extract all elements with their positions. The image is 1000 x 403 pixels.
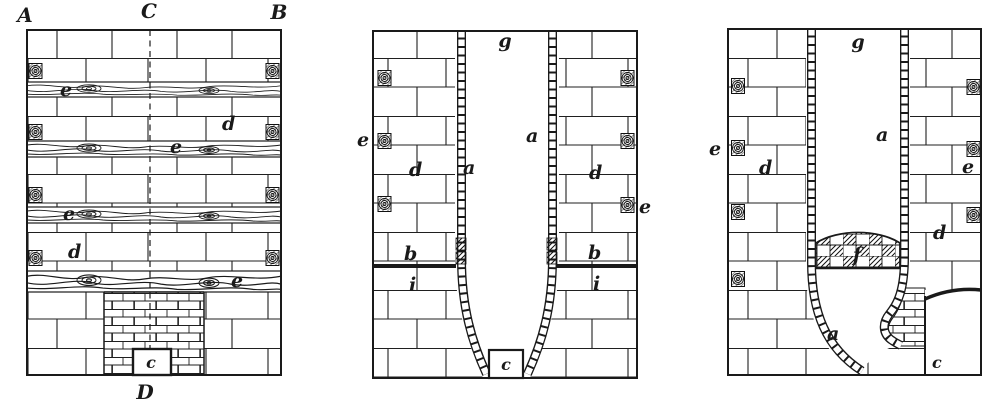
beam-end-block <box>732 272 745 287</box>
label-masonry-right: d <box>589 162 602 184</box>
beam-end-block <box>967 142 980 157</box>
label-top-left: A <box>15 3 33 27</box>
label-course-right: i <box>593 273 600 295</box>
label-beam-2: e <box>170 136 182 158</box>
beam-end-block <box>621 71 634 86</box>
label-band-right: b <box>588 242 601 264</box>
label-opening: c <box>146 353 156 372</box>
label-beam-end-left: e <box>357 129 369 151</box>
label-masonry-lower: d <box>68 241 81 263</box>
beam-end-block <box>621 198 634 213</box>
hatched-brick <box>547 238 557 250</box>
beam-end-block <box>266 188 279 203</box>
beam-end-block <box>29 251 42 266</box>
beam-end-block <box>378 197 391 212</box>
label-top-right: B <box>270 0 288 24</box>
label-masonry-left: d <box>409 159 422 181</box>
timber-band-2 <box>27 141 281 157</box>
label-opening: c <box>932 353 942 372</box>
label-lining-left: a <box>463 157 475 179</box>
label-beam-end-right: e <box>639 196 651 218</box>
beam-end-block <box>378 71 391 86</box>
label-lining-right: a <box>526 125 538 147</box>
panel-wall-elevation: A C B D e e e e d d c <box>15 0 287 403</box>
beam-end-block <box>29 188 42 203</box>
hatched-brick <box>547 252 557 264</box>
label-bottom-center: D <box>135 380 154 403</box>
label-beam-end-right: e <box>962 156 974 178</box>
label-lining-lower: a <box>827 323 839 345</box>
beam-end-block <box>967 208 980 223</box>
label-flue: g <box>851 31 864 53</box>
label-opening: c <box>501 355 511 374</box>
beam-end-block <box>29 125 42 140</box>
panel-flue-straight: g a a e e d d b b i i c <box>357 30 651 378</box>
label-masonry-left: d <box>759 157 772 179</box>
beam-end-block <box>732 141 745 156</box>
beam-end-block <box>266 125 279 140</box>
label-flue: g <box>498 30 511 52</box>
label-masonry-right: d <box>933 222 946 244</box>
label-beam-end-left: e <box>709 138 721 160</box>
label-top-center: C <box>141 0 157 23</box>
figure-canvas: A C B D e e e e d d c <box>0 0 1000 403</box>
beam-end-block <box>732 79 745 94</box>
beam-end-block <box>732 205 745 220</box>
label-masonry-upper: d <box>222 113 235 135</box>
label-lining-upper: a <box>876 124 888 146</box>
label-beam-4: e <box>231 270 243 292</box>
label-band-left: b <box>404 243 417 265</box>
label-course-left: i <box>409 274 416 296</box>
label-beam-3: e <box>63 203 75 225</box>
beam-end-block <box>967 80 980 95</box>
beam-end-block <box>378 134 391 149</box>
beam-end-block <box>266 251 279 266</box>
label-beam-1: e <box>60 79 72 101</box>
hatched-brick <box>456 252 466 264</box>
beam-end-block <box>621 134 634 149</box>
hatched-brick <box>456 238 466 250</box>
beam-end-block <box>29 64 42 79</box>
figure-svg: A C B D e e e e d d c <box>0 0 1000 403</box>
panel-flue-offset: g a a e e d d f c <box>709 29 981 375</box>
beam-end-block <box>266 64 279 79</box>
